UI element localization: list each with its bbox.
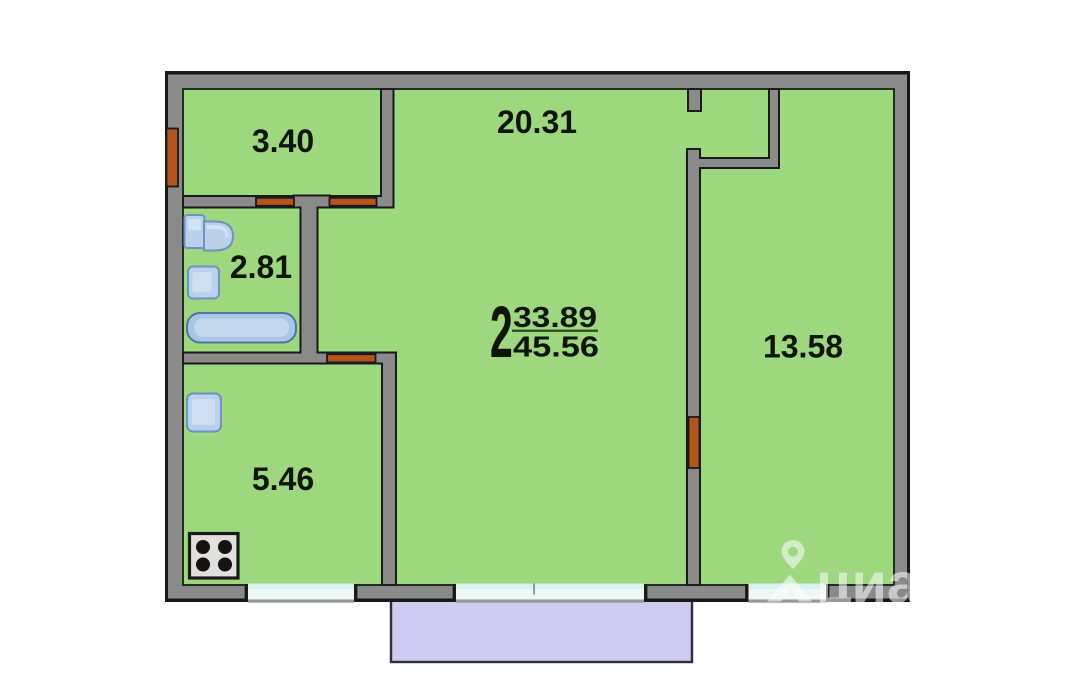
svg-text:5.46: 5.46: [252, 461, 314, 497]
svg-text:45.56: 45.56: [513, 332, 599, 364]
svg-text:33.89: 33.89: [513, 302, 597, 334]
svg-text:2: 2: [490, 290, 513, 373]
svg-text:20.31: 20.31: [497, 104, 577, 140]
svg-text:13.58: 13.58: [763, 329, 843, 365]
svg-text:3.40: 3.40: [252, 123, 314, 159]
svg-text:2.81: 2.81: [230, 249, 292, 285]
svg-text:циан: циан: [816, 552, 954, 616]
